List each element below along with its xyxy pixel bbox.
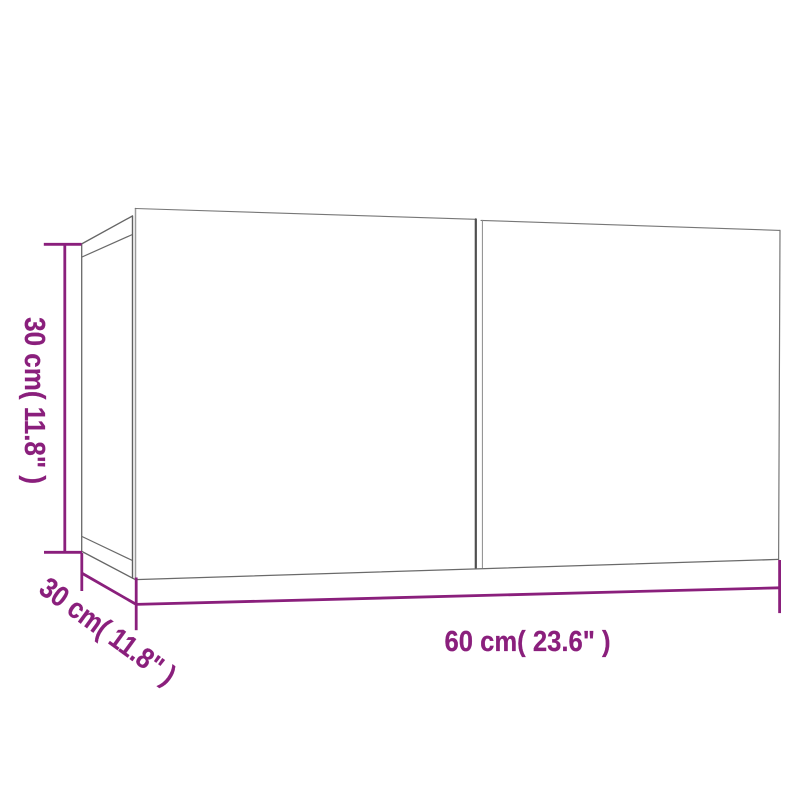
svg-text:60 cm( 23.6" ): 60 cm( 23.6" ): [444, 625, 610, 658]
svg-text:30 cm( 11.8" ): 30 cm( 11.8" ): [18, 317, 51, 484]
